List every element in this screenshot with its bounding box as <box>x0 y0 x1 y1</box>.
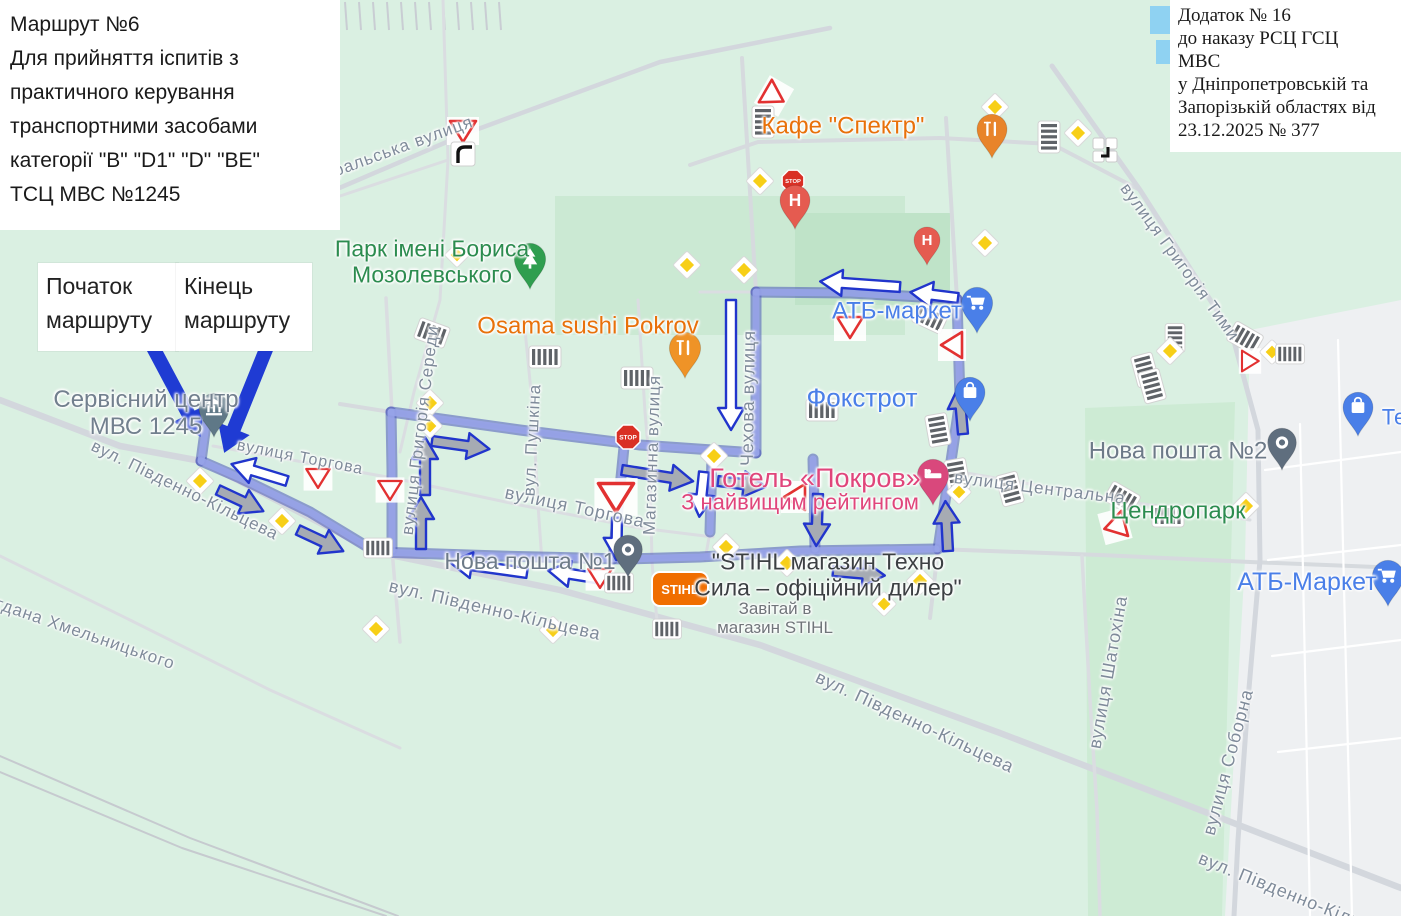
route-line: практичного керування <box>10 76 340 110</box>
route-line: Для прийняття іспитів з <box>10 42 340 76</box>
railway-crossing-icon <box>413 317 451 349</box>
road <box>0 772 386 916</box>
hatch-line <box>387 2 389 30</box>
priority-road-sign-icon <box>871 591 896 616</box>
nova-poshta-pin[interactable] <box>614 535 643 577</box>
route-title: Маршрут №6 <box>10 8 340 42</box>
priority-road-sign-icon <box>186 467 214 495</box>
urban-district <box>1225 300 1401 916</box>
priority-road-sign-icon <box>906 567 934 595</box>
svg-text:STOP: STOP <box>619 434 637 441</box>
svg-text:STOP: STOP <box>785 179 801 185</box>
road <box>0 756 398 916</box>
railway-crossing-icon <box>752 106 774 138</box>
exam-route <box>201 424 206 461</box>
yield-sign-icon <box>834 313 866 341</box>
hatch-line <box>457 2 459 30</box>
route-direction-arrow <box>832 558 886 588</box>
hatch-line <box>401 2 403 30</box>
map-canvas[interactable]: STOPSTOPHHSTIHL Уральська вулицявулиця Г… <box>0 0 1401 916</box>
decree-line: МВС <box>1178 50 1401 73</box>
decree-tab-icon <box>1150 6 1170 34</box>
stop-sign-icon: STOP <box>616 425 640 449</box>
hatch-line <box>471 2 473 30</box>
yield-sign-icon <box>447 117 479 145</box>
railway-crossing-icon <box>529 346 561 368</box>
route-line: транспортними засобами <box>10 110 340 144</box>
road <box>400 0 448 452</box>
yield-sign-icon <box>781 481 809 513</box>
hatch-line <box>345 2 347 30</box>
railway-crossing-icon <box>1276 344 1305 364</box>
priority-direction-sign-icon <box>451 142 475 166</box>
hatch-line <box>499 2 501 30</box>
yield-sign-icon <box>1239 348 1261 374</box>
railway-crossing-icon <box>1152 505 1184 527</box>
hatch-line <box>359 2 361 30</box>
stihl-logo[interactable]: STIHL <box>652 572 708 606</box>
svg-text:STIHL: STIHL <box>661 582 699 597</box>
priority-road-sign-icon <box>1064 119 1092 147</box>
decree-line: Запорізькій областях від <box>1178 96 1401 119</box>
route-direction-arrow <box>408 497 434 549</box>
route-line: категорії "B" "D1" "D" "BE" <box>10 144 340 178</box>
yield-sign-icon <box>376 477 405 502</box>
railway-crossing-icon <box>806 399 838 421</box>
park-pin[interactable] <box>514 243 545 289</box>
atb-market-pin[interactable] <box>961 287 992 333</box>
decree-info-box: Додаток № 16 до наказу РСЦ ГСЦ МВС у Дні… <box>1170 0 1401 152</box>
railway-crossing-icon <box>605 573 634 593</box>
hatch-line <box>415 2 417 30</box>
sushi-pin[interactable] <box>669 332 700 378</box>
railway-crossing-icon <box>364 538 393 558</box>
route-end-label: Кінець маршруту <box>176 263 312 351</box>
svg-text:H: H <box>789 190 801 210</box>
railway-crossing-icon <box>995 471 1025 508</box>
railway-crossing-icon <box>924 412 951 447</box>
railway-crossing-icon <box>653 619 682 639</box>
decree-line: 23.12.2025 № 377 <box>1178 119 1401 142</box>
decree-line: Додаток № 16 <box>1178 4 1401 27</box>
cafe-pin[interactable] <box>977 114 1007 158</box>
hatch-line <box>485 2 487 30</box>
priority-road-sign-icon <box>362 615 390 643</box>
yield-sign-icon <box>304 465 333 490</box>
decree-line: до наказу РСЦ ГСЦ <box>1178 27 1401 50</box>
railway-crossing-icon <box>621 367 653 389</box>
hatch-line <box>429 2 431 30</box>
road <box>0 556 400 748</box>
priority-road-sign-icon <box>539 616 567 644</box>
route-line: ТСЦ МВС №1245 <box>10 178 340 212</box>
route-direction-arrow <box>716 468 767 500</box>
hatch-line <box>373 2 375 30</box>
dendropark-strip <box>1085 402 1235 916</box>
route-direction-arrow <box>430 428 491 462</box>
yield-sign-icon <box>938 329 966 361</box>
priority-road-sign-icon <box>444 242 469 267</box>
route-info-box: Маршрут №6 Для прийняття іспитів з практ… <box>0 0 340 230</box>
decree-line: у Дніпропетровській та <box>1178 73 1401 96</box>
railway-crossing-icon <box>1137 368 1167 405</box>
priority-road-sign-icon <box>971 229 999 257</box>
svg-text:H: H <box>922 232 933 249</box>
route-start-label: Початок маршруту <box>38 263 178 351</box>
yield-sign-icon <box>594 478 637 516</box>
railway-crossing-icon <box>1038 121 1060 153</box>
decree-tab-icon <box>1156 40 1170 64</box>
